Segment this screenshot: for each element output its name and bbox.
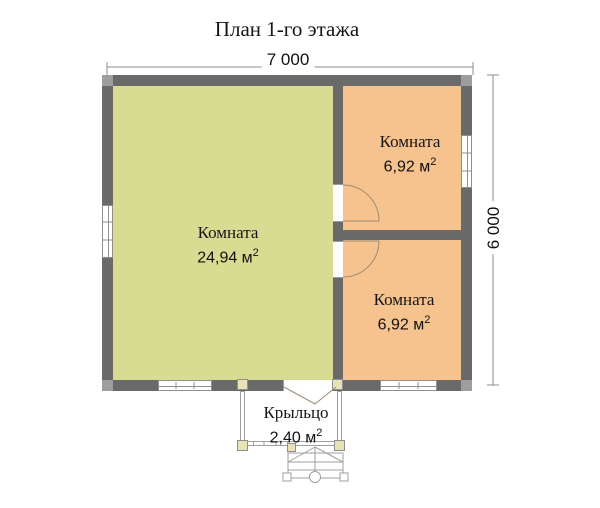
porch-name: Крыльцо bbox=[263, 402, 328, 423]
floor-plan: План 1-го этажа bbox=[0, 0, 600, 508]
living-room-area-value: 24,94 м bbox=[197, 249, 252, 266]
bedroom-top-area: 6,92 м2 bbox=[380, 152, 441, 177]
bedroom-bottom-name: Комната bbox=[374, 289, 435, 310]
stairs-column-circle bbox=[310, 472, 321, 483]
stairs-foot-left bbox=[283, 473, 291, 481]
window-living-bottom bbox=[158, 380, 212, 391]
window-bedroom-bottom bbox=[380, 380, 437, 391]
window-right-wall bbox=[461, 135, 472, 188]
window-glass-line bbox=[381, 386, 436, 387]
porch-wall-right bbox=[337, 391, 342, 446]
wall-corner-top-left bbox=[102, 75, 113, 86]
plan-title: План 1-го этажа bbox=[102, 17, 472, 42]
door-opening-bedroom-bottom bbox=[333, 241, 343, 278]
bedroom-top-area-value: 6,92 м bbox=[384, 158, 431, 175]
porch-post-top-right bbox=[332, 379, 343, 390]
window-left-wall bbox=[102, 205, 113, 258]
bedroom-bottom-area: 6,92 м2 bbox=[374, 310, 435, 335]
bedroom-bottom-area-value: 6,92 м bbox=[378, 316, 425, 333]
bedroom-top-area-sup: 2 bbox=[430, 156, 436, 168]
bedroom-top-label: Комната 6,92 м2 bbox=[380, 131, 441, 177]
bedroom-top-name: Комната bbox=[380, 131, 441, 152]
stairs-foot-right bbox=[340, 473, 348, 481]
porch-area-sup: 2 bbox=[316, 427, 322, 439]
window-glass-line bbox=[467, 136, 468, 187]
wall-corner-bottom-right bbox=[461, 380, 472, 391]
entrance-door-opening bbox=[283, 380, 333, 391]
porch-wall-left bbox=[240, 391, 245, 446]
wall-corner-top-right bbox=[461, 75, 472, 86]
living-room-label: Комната 24,94 м2 bbox=[197, 222, 259, 268]
dimension-height-label: 6 000 bbox=[484, 202, 504, 255]
porch-label: Крыльцо 2,40 м2 bbox=[263, 402, 328, 448]
living-room-area-sup: 2 bbox=[253, 247, 259, 259]
porch-area: 2,40 м2 bbox=[263, 423, 328, 448]
living-room-area: 24,94 м2 bbox=[197, 243, 259, 268]
bedroom-bottom-area-sup: 2 bbox=[424, 314, 430, 326]
wall-corner-bottom-left bbox=[102, 380, 113, 391]
porch-post-bottom-right bbox=[334, 440, 345, 451]
porch-post-bottom-left bbox=[237, 440, 248, 451]
bedroom-bottom-label: Комната 6,92 м2 bbox=[374, 289, 435, 335]
window-glass-line bbox=[159, 386, 211, 387]
door-opening-bedroom-top bbox=[333, 184, 343, 222]
window-glass-line bbox=[108, 206, 109, 257]
porch-post-top-left bbox=[237, 379, 248, 390]
dimension-width-label: 7 000 bbox=[262, 50, 315, 70]
porch-area-value: 2,40 м bbox=[270, 429, 317, 446]
living-room-name: Комната bbox=[197, 222, 259, 243]
